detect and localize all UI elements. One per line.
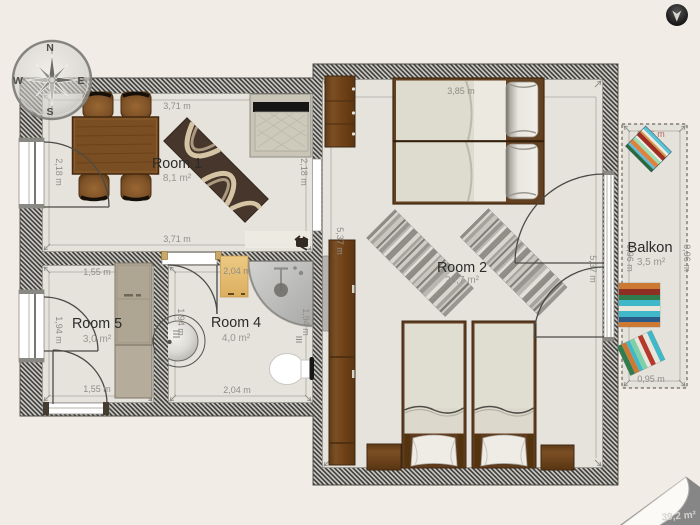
svg-text:3,71 m: 3,71 m (163, 101, 191, 111)
svg-text:S: S (46, 106, 53, 118)
svg-text:3,71 m: 3,71 m (163, 234, 191, 244)
svg-text:20,7 m²: 20,7 m² (445, 275, 480, 286)
svg-text:2,18 m: 2,18 m (54, 158, 64, 186)
svg-text:5,37 m: 5,37 m (335, 227, 345, 255)
svg-text:Balkon: Balkon (627, 240, 672, 256)
svg-text:N: N (46, 42, 54, 54)
svg-text:1,94 m: 1,94 m (54, 316, 64, 344)
svg-text:5,37 m: 5,37 m (588, 255, 598, 283)
svg-text:Room 4: Room 4 (211, 315, 261, 331)
svg-text:2,18 m: 2,18 m (299, 158, 309, 186)
svg-text:8,1 m²: 8,1 m² (163, 173, 192, 184)
svg-text:1,55 m: 1,55 m (83, 384, 111, 394)
svg-text:Room 1: Room 1 (152, 156, 202, 172)
svg-text:3,5 m²: 3,5 m² (637, 257, 666, 268)
svg-text:3,0 m²: 3,0 m² (83, 334, 112, 345)
svg-text:Room 5: Room 5 (72, 316, 122, 332)
svg-text:W: W (13, 75, 23, 87)
svg-text:2,04 m: 2,04 m (223, 385, 251, 395)
svg-text:3,85 m: 3,85 m (447, 86, 475, 96)
svg-text:0,95 m: 0,95 m (637, 374, 665, 384)
svg-text:1,55 m: 1,55 m (83, 267, 111, 277)
svg-text:1,94 m: 1,94 m (176, 308, 186, 336)
svg-text:E: E (77, 75, 84, 87)
svg-text:4,0 m²: 4,0 m² (222, 333, 251, 344)
svg-text:2,04 m: 2,04 m (223, 266, 251, 276)
svg-text:Room 2: Room 2 (437, 260, 487, 276)
svg-text:1,94 m: 1,94 m (301, 308, 311, 336)
svg-text:0,96 m: 0,96 m (682, 244, 692, 272)
